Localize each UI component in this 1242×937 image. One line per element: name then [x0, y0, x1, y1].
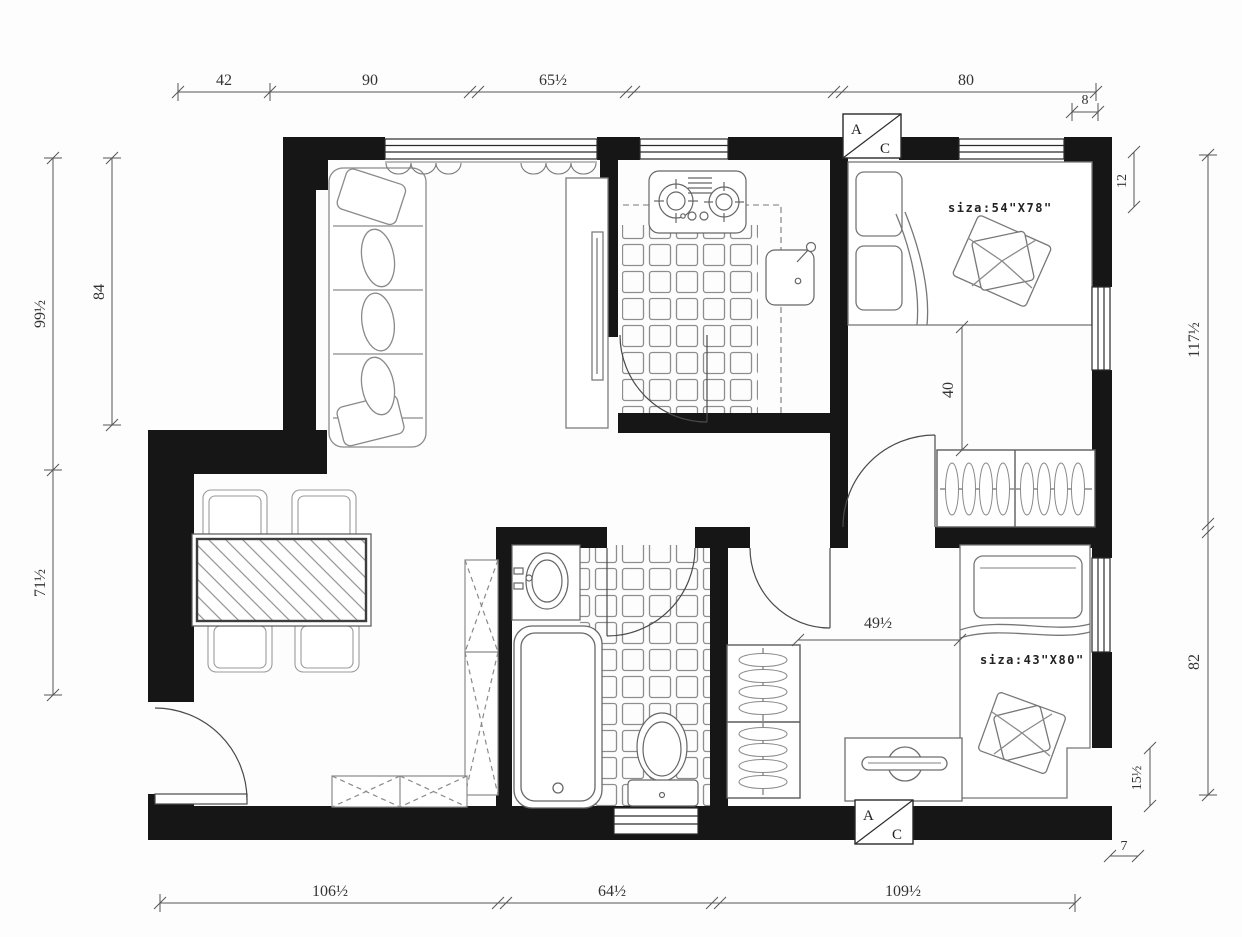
dining-table	[192, 534, 371, 626]
dim-label-interior-49: 49½	[864, 615, 892, 632]
window-bathroom	[614, 808, 698, 834]
bed-1	[848, 162, 1092, 325]
kitchen-tile-floor	[622, 225, 758, 415]
dim-label-bottom-64: 64½	[598, 883, 626, 900]
sofa	[329, 167, 426, 447]
shoe-cabinet	[332, 776, 467, 807]
tv-cabinet	[566, 178, 608, 428]
ac-letter-a: A	[851, 122, 862, 138]
kitchen-stove	[649, 171, 746, 233]
dim-label-right-12: 12	[1115, 174, 1130, 188]
storage-cabinet-tall	[465, 560, 498, 795]
window-living	[385, 139, 597, 159]
bed-2	[960, 545, 1090, 798]
dim-label-right-117: 117½	[1186, 322, 1203, 357]
desk	[845, 738, 962, 801]
window-kitchen	[640, 139, 728, 159]
dim-label-interior-40: 40	[940, 382, 957, 398]
ac-letter-c: C	[880, 141, 890, 157]
ac-box-top: A C	[843, 114, 901, 158]
dining-chair	[295, 620, 359, 672]
wardrobe-2	[727, 645, 800, 798]
dim-label-top-42: 42	[216, 72, 232, 89]
entry-door	[155, 708, 247, 804]
dining-chair	[208, 620, 272, 672]
dim-label-top-65: 65½	[539, 72, 567, 89]
bathtub	[514, 626, 602, 808]
ac-box-bottom: A C	[855, 800, 913, 844]
wardrobe-1	[937, 450, 1095, 527]
bed-2-size-label: siza:43"X80"	[980, 653, 1085, 667]
dim-label-right-15: 15½	[1130, 766, 1145, 791]
window-right-upper	[1092, 287, 1110, 370]
window-right-lower	[1092, 558, 1110, 652]
dim-label-top-8: 8	[1082, 93, 1089, 108]
bedroom-2-door	[750, 548, 830, 628]
dim-label-right-82: 82	[1186, 654, 1203, 670]
curtain	[385, 162, 597, 174]
dim-label-left-71: 71½	[32, 569, 49, 597]
floor-plan: A C A C	[0, 0, 1242, 937]
dim-label-left-99: 99½	[32, 300, 49, 328]
kitchen-sink	[766, 243, 816, 306]
dim-label-top-90: 90	[362, 72, 378, 89]
bedroom-1-door	[843, 435, 935, 527]
window-bedroom-1	[959, 139, 1064, 159]
dim-label-left-84: 84	[91, 284, 108, 300]
ac-letter-a: A	[863, 808, 874, 824]
ac-letter-c: C	[892, 827, 902, 843]
bathroom-vanity	[512, 545, 580, 620]
dim-label-top-80: 80	[958, 72, 974, 89]
dim-label-bottom-109: 109½	[885, 883, 921, 900]
dim-label-bottom-7: 7	[1121, 839, 1128, 854]
bed-1-size-label: siza:54"X78"	[948, 201, 1053, 215]
dim-label-bottom-106: 106½	[312, 883, 348, 900]
